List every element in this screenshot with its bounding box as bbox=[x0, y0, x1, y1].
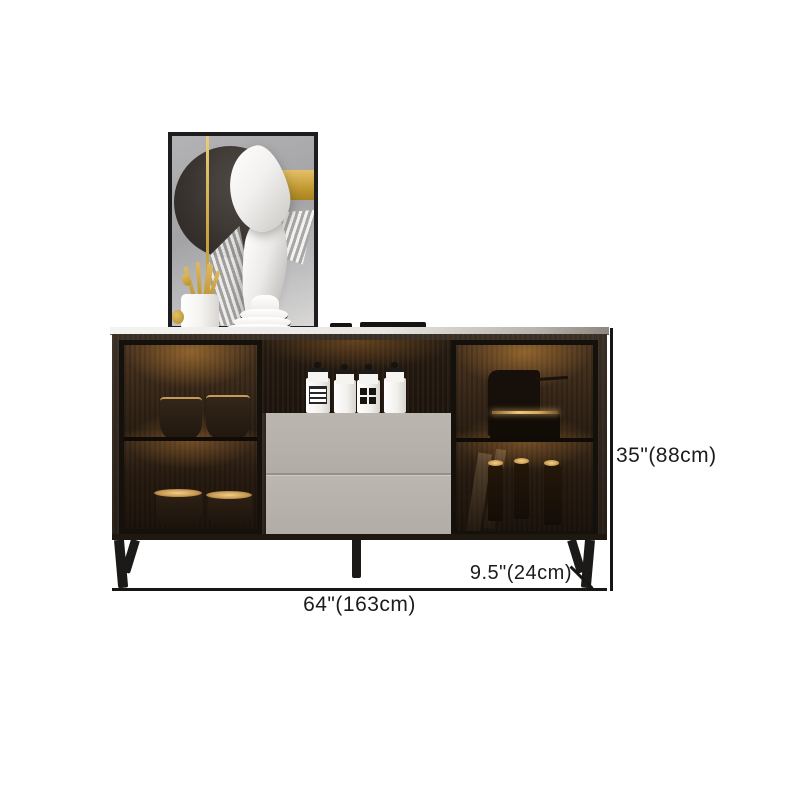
bowl bbox=[206, 395, 250, 441]
door-shelf bbox=[124, 437, 257, 441]
canister-jar bbox=[306, 378, 330, 413]
canister-jar bbox=[334, 380, 356, 413]
jar-lid bbox=[308, 368, 328, 382]
jar-lid bbox=[336, 370, 354, 384]
open-shelf bbox=[262, 340, 451, 413]
jar-lid bbox=[386, 368, 404, 382]
jar-window bbox=[360, 388, 367, 395]
bowl bbox=[160, 397, 202, 441]
product-image: 64"(163cm) 35"(88cm) 9.5"(24cm) bbox=[0, 0, 800, 800]
door-shelf bbox=[456, 438, 593, 442]
height-dimension-label: 35"(88cm) bbox=[616, 444, 717, 468]
glass-door-right-pane bbox=[456, 345, 593, 531]
width-dimension-line bbox=[112, 588, 607, 591]
glass-door-left bbox=[119, 340, 262, 534]
drawer-stack bbox=[266, 413, 451, 536]
jar-window bbox=[360, 397, 367, 404]
jar-window bbox=[369, 397, 376, 404]
jar-label bbox=[309, 386, 327, 404]
width-dimension-label: 64"(163cm) bbox=[112, 593, 607, 617]
wine-bottle bbox=[488, 463, 503, 521]
cabinet-leg bbox=[352, 540, 361, 578]
jar-knob bbox=[365, 364, 372, 370]
wine-bottle bbox=[514, 461, 529, 519]
glass-door-right bbox=[451, 340, 598, 536]
glass-door-left-pane bbox=[124, 345, 257, 529]
teapot-spout bbox=[536, 376, 568, 381]
dark-stack bbox=[490, 414, 560, 440]
drawer-top bbox=[266, 413, 451, 475]
lit-shelf-edge bbox=[492, 411, 558, 414]
bowl-lit bbox=[208, 495, 252, 529]
jar-knob bbox=[391, 362, 398, 368]
jar-window bbox=[369, 388, 376, 395]
height-dimension-line bbox=[610, 328, 613, 591]
drawer-bottom bbox=[266, 475, 451, 537]
canister-jar bbox=[384, 378, 406, 413]
depth-dimension-label: 9.5"(24cm) bbox=[430, 562, 572, 585]
canister-jar bbox=[357, 380, 380, 413]
gold-ornament bbox=[172, 310, 184, 324]
bowl-lit bbox=[156, 493, 202, 529]
wine-bottle bbox=[544, 463, 561, 525]
jar-lid bbox=[359, 370, 378, 384]
jar-knob bbox=[341, 364, 348, 370]
jar-knob bbox=[314, 362, 321, 368]
